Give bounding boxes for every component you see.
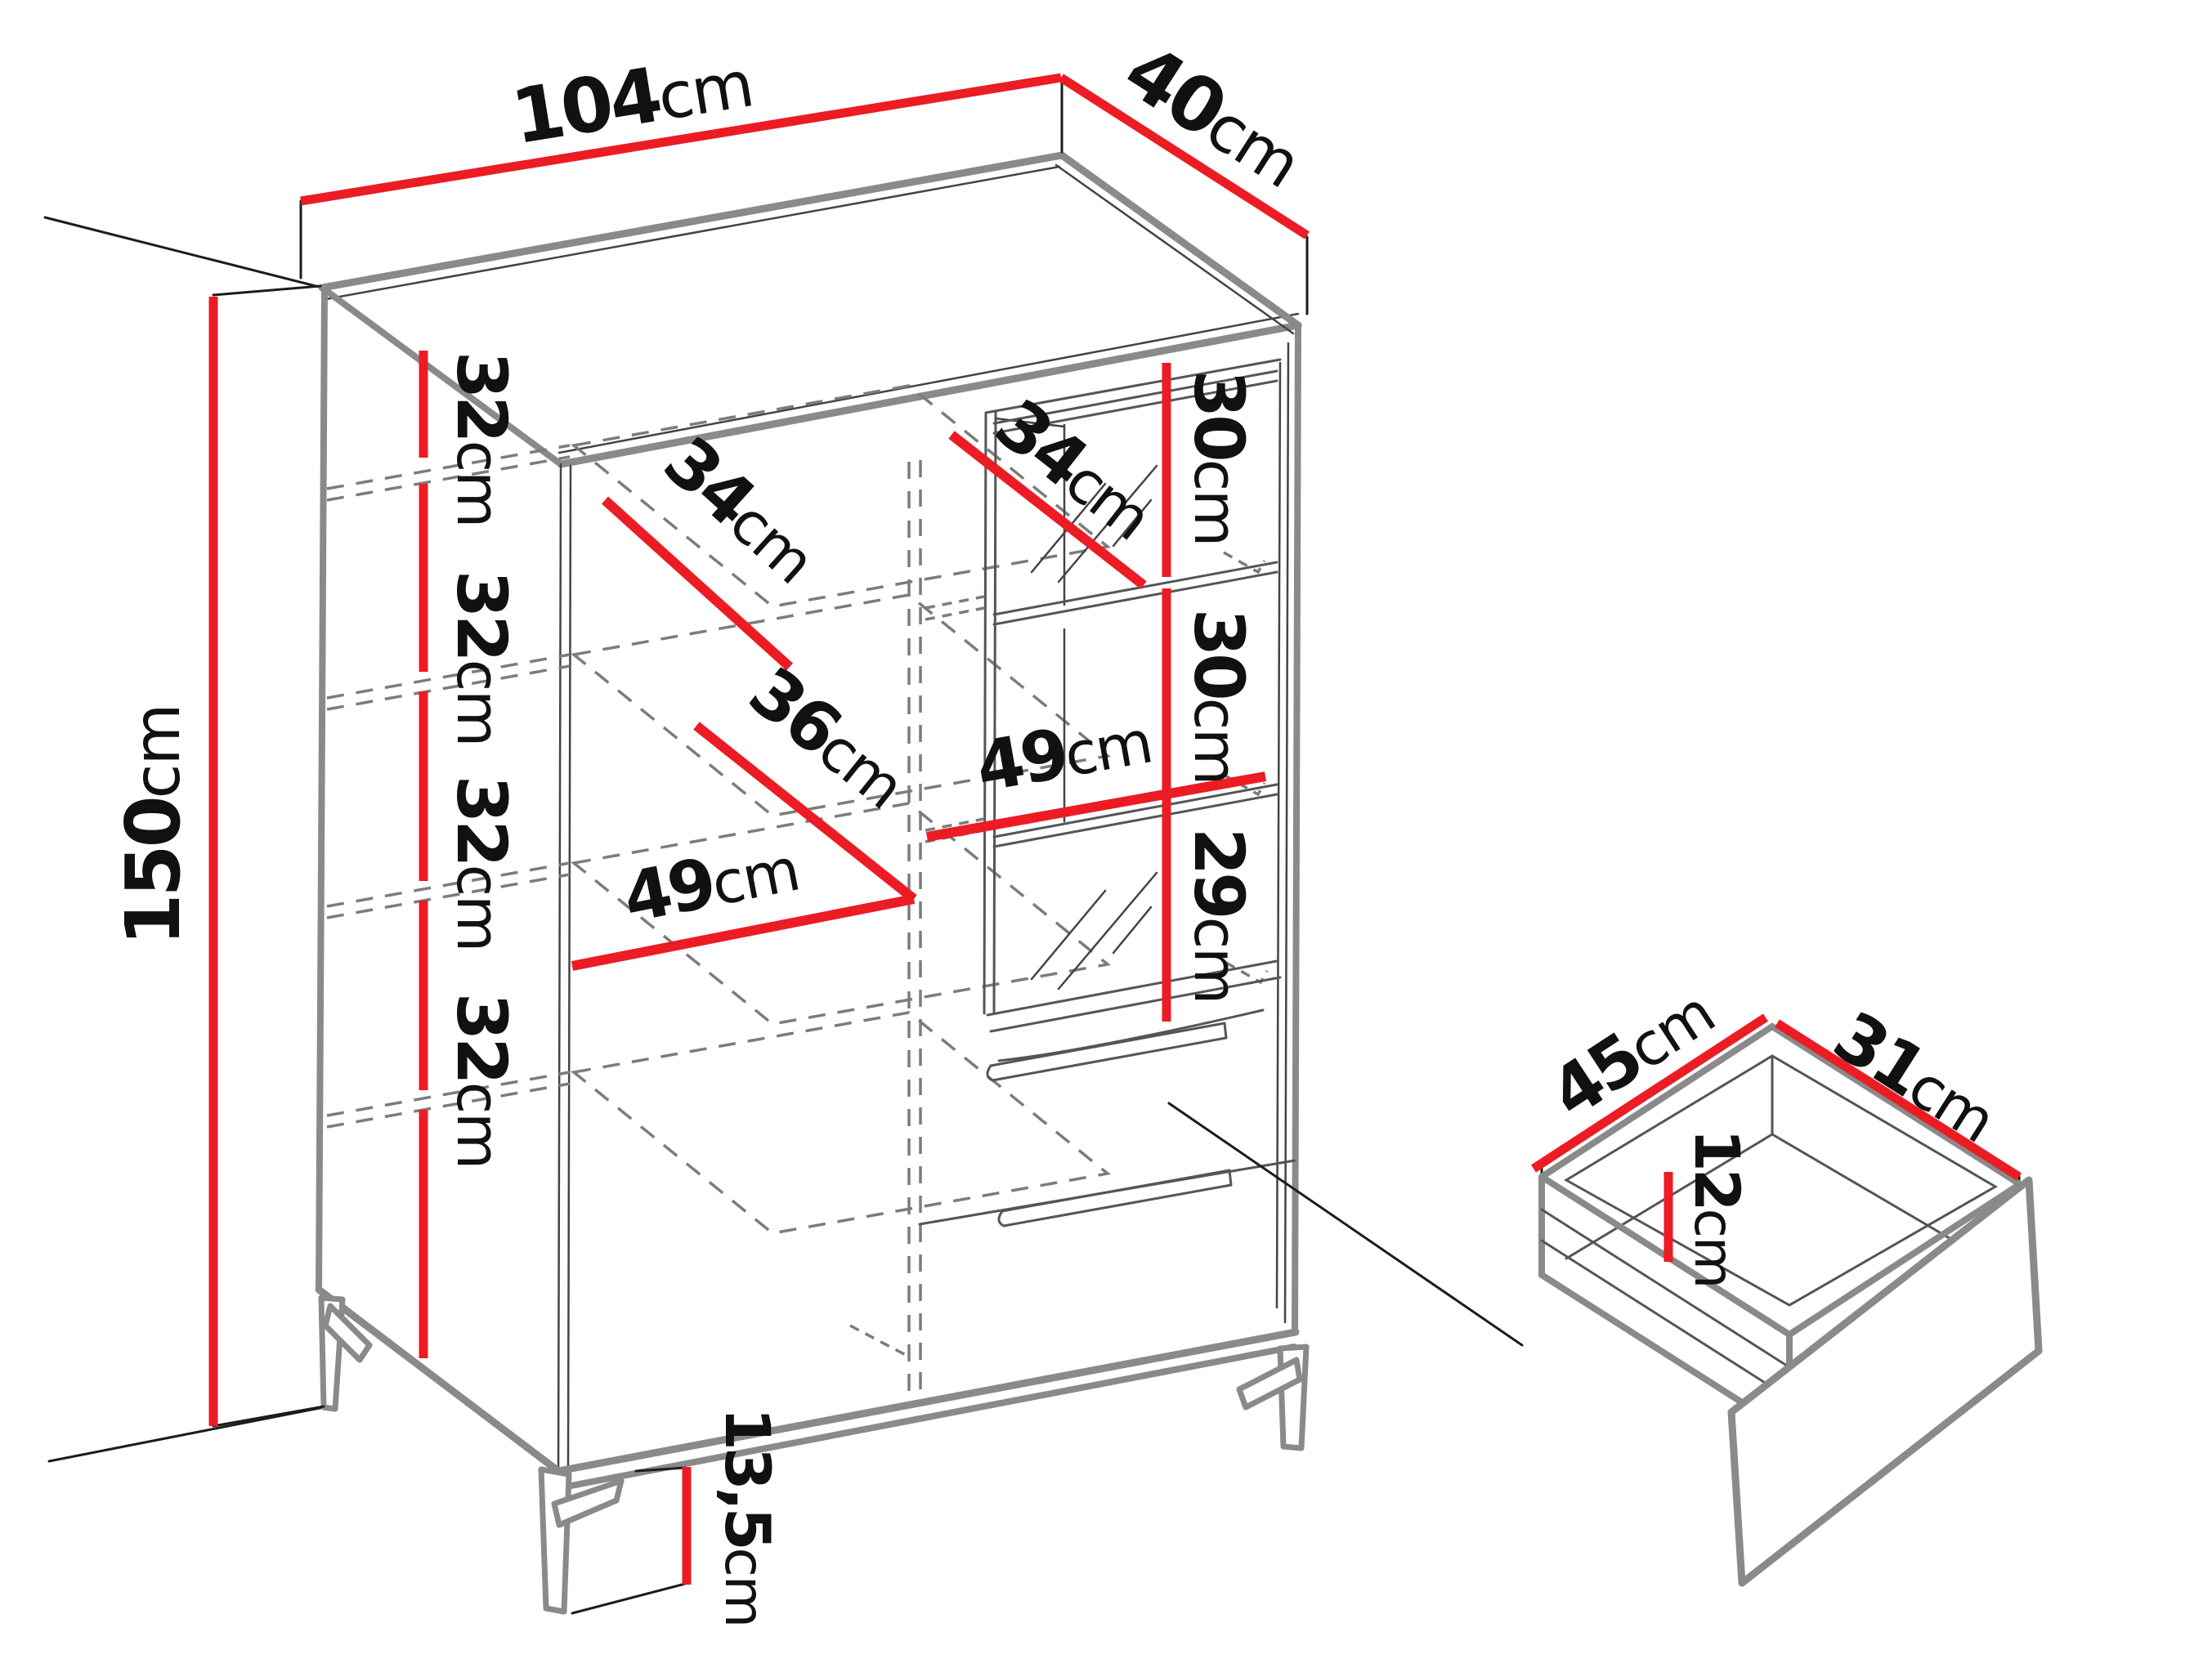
drawer-1-handle <box>987 1023 1226 1080</box>
front-left-edge-inner <box>568 466 571 1468</box>
glass-shelf1-a <box>994 562 1277 615</box>
right-outer-edge <box>1295 325 1298 1332</box>
drawer-front-panel <box>1731 1180 2039 1583</box>
label-34-left: 34cm <box>649 421 833 597</box>
dimension-diagram: 104cm 40cm 150cm 32cm 32cm 32cm 32cm 34c… <box>0 0 2212 1659</box>
label-width-104: 104cm <box>506 37 758 162</box>
drawer-2-handle <box>999 1170 1231 1226</box>
tray-lip <box>999 1010 1263 1061</box>
reflection-stroke <box>1032 891 1105 979</box>
label-30-middle: 30cm <box>1179 609 1259 785</box>
drawer-pointer-line <box>1169 1103 1522 1345</box>
label-36: 36cm <box>735 651 922 823</box>
glass-left-stile-a <box>984 413 986 1013</box>
reflection-stroke <box>1113 907 1151 953</box>
reflection-stroke <box>1059 873 1157 989</box>
dimension-labels: 104cm 40cm 150cm 32cm 32cm 32cm 32cm 34c… <box>110 27 2011 1626</box>
ext-height-top <box>213 286 320 295</box>
bottom-left-depth-edge <box>319 1290 558 1471</box>
ext-leg-top <box>636 1468 685 1471</box>
top-back-inner-edge <box>326 167 1059 299</box>
label-shelf-32-3: 32cm <box>441 776 522 951</box>
diagram-page: 104cm 40cm 150cm 32cm 32cm 32cm 32cm 34c… <box>0 0 2212 1659</box>
shelf4-outline <box>574 1013 1108 1233</box>
floor-guide-left <box>49 1407 324 1461</box>
label-leg-13-5: 13,5cm <box>711 1407 784 1626</box>
cabinet-legs <box>321 1298 1306 1612</box>
label-drawer-12: 12cm <box>1681 1129 1753 1287</box>
front-left-edge <box>558 464 561 1469</box>
drawer-left-wall-seam <box>1542 1241 1789 1398</box>
top-left-depth-edge <box>322 288 561 464</box>
glass-left-stile-b <box>994 411 996 1012</box>
left-back-edge <box>319 288 325 1290</box>
glass-reflection-bottom <box>1032 873 1157 989</box>
ext-height-bottom <box>213 1406 324 1426</box>
label-30-top: 30cm <box>1179 370 1259 546</box>
label-29: 29cm <box>1179 828 1259 1004</box>
label-height-150: 150cm <box>110 705 197 946</box>
bottom-front-edge <box>558 1332 1296 1471</box>
wall-guide-line <box>45 217 322 288</box>
right-door-gap <box>1285 343 1288 1322</box>
label-shelf-32-2: 32cm <box>441 570 522 746</box>
shelf-level-tick <box>925 608 984 619</box>
handle-cap <box>1225 1023 1226 1038</box>
label-drawer-31: 31cm <box>1820 996 2012 1158</box>
cabinet-drawers <box>920 1023 1295 1226</box>
hidden-bottom-edge <box>850 1326 906 1355</box>
bottom-front-base-edge <box>562 1347 1294 1487</box>
shelf-level-tick <box>925 597 984 608</box>
glass-right-stile <box>1277 363 1280 1308</box>
label-shelf-32-1: 32cm <box>441 351 522 527</box>
label-shelf-32-4: 32cm <box>441 993 522 1169</box>
handle-cap <box>999 1211 1004 1226</box>
front-left-leg <box>541 1469 569 1612</box>
floor-guide-front <box>572 1584 685 1613</box>
handle-cap <box>1229 1170 1231 1185</box>
